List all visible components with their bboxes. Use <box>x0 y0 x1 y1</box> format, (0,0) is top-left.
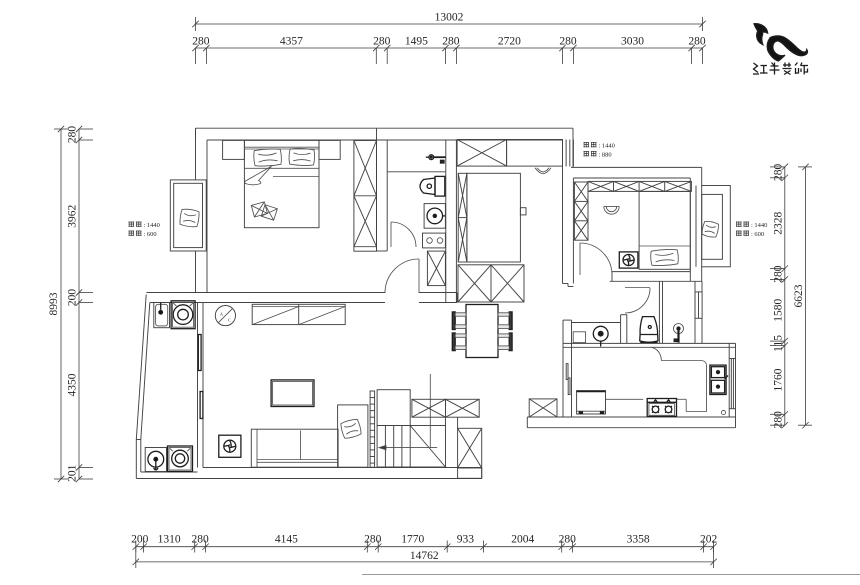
svg-text:: 1440: : 1440 <box>144 222 160 229</box>
svg-text:: 880: : 880 <box>599 152 612 159</box>
svg-text:280: 280 <box>688 36 706 48</box>
svg-text:1770: 1770 <box>401 534 424 546</box>
svg-text:2720: 2720 <box>498 36 521 48</box>
svg-text:280: 280 <box>373 36 391 48</box>
svg-text:2004: 2004 <box>511 534 534 546</box>
svg-text:: 1440: : 1440 <box>599 143 615 150</box>
svg-text:14762: 14762 <box>410 550 439 562</box>
svg-text:A: A <box>220 312 223 317</box>
svg-text:13002: 13002 <box>435 12 464 24</box>
svg-text:280: 280 <box>772 411 784 429</box>
svg-text:280: 280 <box>191 534 209 546</box>
svg-text:201: 201 <box>67 464 79 482</box>
svg-text:202: 202 <box>700 534 718 546</box>
svg-text:280: 280 <box>772 164 784 182</box>
svg-text:200: 200 <box>131 534 149 546</box>
svg-text:280: 280 <box>67 126 79 144</box>
svg-text:3030: 3030 <box>621 36 644 48</box>
svg-text:3962: 3962 <box>67 204 79 227</box>
svg-text:1495: 1495 <box>405 36 428 48</box>
svg-text:280: 280 <box>364 534 382 546</box>
svg-text:280: 280 <box>559 36 577 48</box>
svg-text:4145: 4145 <box>275 534 298 546</box>
svg-text:8993: 8993 <box>48 292 60 315</box>
svg-text:4350: 4350 <box>67 373 79 396</box>
svg-text:200: 200 <box>67 289 79 307</box>
svg-text:: 1440: : 1440 <box>751 222 767 229</box>
svg-text:: 600: : 600 <box>144 231 157 238</box>
svg-text:3358: 3358 <box>627 534 650 546</box>
svg-text:: 600: : 600 <box>751 231 764 238</box>
svg-text:115: 115 <box>772 335 784 352</box>
svg-text:280: 280 <box>442 36 460 48</box>
svg-text:6623: 6623 <box>793 284 805 307</box>
svg-text:C: C <box>228 318 231 323</box>
svg-text:1760: 1760 <box>772 368 784 391</box>
svg-text:2328: 2328 <box>772 211 784 234</box>
svg-text:933: 933 <box>457 534 475 546</box>
svg-text:280: 280 <box>192 36 210 48</box>
svg-text:1310: 1310 <box>158 534 181 546</box>
svg-text:4357: 4357 <box>280 36 303 48</box>
svg-text:1580: 1580 <box>772 299 784 322</box>
svg-text:280: 280 <box>772 265 784 283</box>
svg-text:280: 280 <box>559 534 577 546</box>
